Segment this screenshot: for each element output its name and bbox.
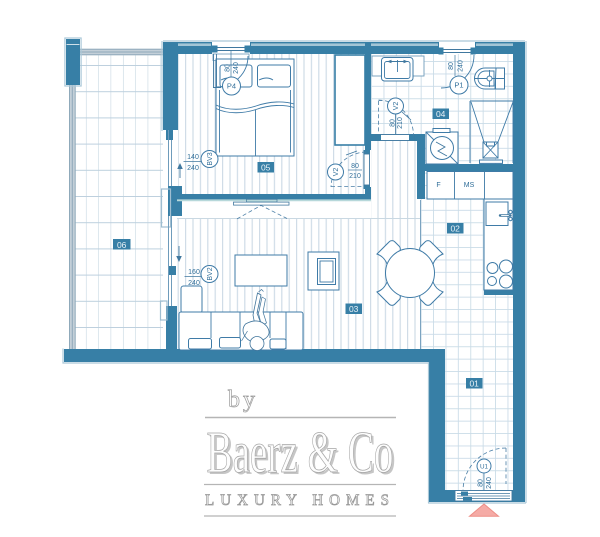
svg-text:80: 80 [448, 62, 455, 70]
svg-text:F: F [436, 182, 440, 189]
svg-text:240: 240 [486, 477, 493, 489]
svg-text:V2: V2 [393, 102, 400, 111]
svg-text:BV2: BV2 [207, 267, 214, 280]
svg-text:140: 140 [187, 154, 199, 161]
svg-text:06: 06 [117, 240, 127, 250]
svg-text:P1: P1 [454, 81, 463, 90]
svg-text:80: 80 [351, 163, 359, 170]
svg-text:80: 80 [224, 64, 231, 72]
svg-text:V2: V2 [333, 168, 340, 177]
svg-text:210: 210 [397, 117, 404, 129]
svg-text:LUXURY HOMES: LUXURY HOMES [205, 492, 395, 509]
svg-text:240: 240 [233, 62, 240, 74]
svg-text:Baerz & Co: Baerz & Co [207, 419, 394, 485]
svg-text:04: 04 [436, 109, 446, 119]
svg-text:MS: MS [464, 182, 475, 189]
svg-text:05: 05 [261, 163, 271, 173]
svg-text:240: 240 [187, 165, 199, 172]
svg-text:240: 240 [458, 60, 465, 72]
svg-text:80: 80 [390, 119, 397, 127]
svg-text:160: 160 [188, 269, 200, 276]
svg-text:03: 03 [349, 304, 359, 314]
svg-text:210: 210 [349, 173, 361, 180]
svg-text:02: 02 [450, 224, 460, 234]
svg-text:80: 80 [478, 479, 485, 487]
svg-text:by: by [228, 387, 258, 413]
svg-text:BV3: BV3 [207, 152, 214, 165]
svg-text:01: 01 [469, 379, 479, 389]
svg-text:P4: P4 [227, 82, 236, 91]
svg-text:U1: U1 [480, 463, 489, 470]
